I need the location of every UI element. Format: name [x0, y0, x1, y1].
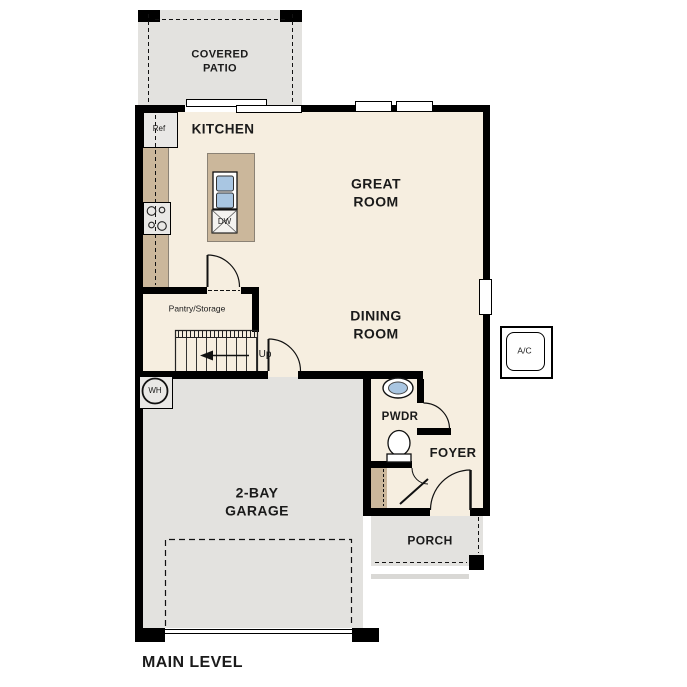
closet-door — [384, 468, 429, 506]
burner-icon — [147, 207, 166, 231]
dining-room-label-line2: ROOM — [350, 325, 401, 343]
covered-patio-label-line1: COVERED — [191, 48, 248, 62]
porch-label: PORCH — [407, 534, 452, 549]
up-label: Up — [259, 349, 272, 362]
powder-door-swing — [424, 403, 450, 429]
dining-room-label-line1: DINING — [350, 308, 401, 326]
ac-unit-label: A/C — [517, 346, 531, 357]
kitchen-label: KITCHEN — [192, 122, 255, 139]
plan-title: MAIN LEVEL — [142, 653, 243, 673]
front-door-swing — [431, 470, 471, 510]
dining-room-label: DINING ROOM — [350, 308, 401, 343]
garage-label-line1: 2-BAY — [225, 485, 289, 503]
floor-plan-canvas: COVERED PATIO KITCHEN GREAT ROOM DINING … — [0, 0, 687, 687]
water-heater-label: WH — [148, 386, 161, 396]
great-room-label-line1: GREAT — [351, 176, 401, 194]
plan-linework — [0, 0, 687, 687]
refrigerator-label: Ref — [153, 124, 165, 134]
stairs — [176, 331, 258, 372]
garage-label: 2-BAY GARAGE — [225, 485, 289, 520]
toilet-icon — [387, 431, 411, 463]
foyer-label: FOYER — [430, 445, 477, 461]
pantry-door-swing — [208, 255, 241, 291]
great-room-label: GREAT ROOM — [351, 176, 401, 211]
great-room-label-line2: ROOM — [351, 193, 401, 211]
garage-entry-door-swing — [269, 339, 301, 371]
covered-patio-label-line2: PATIO — [191, 62, 248, 76]
powder-label: PWDR — [382, 410, 419, 424]
garage-door-dashed — [166, 540, 352, 627]
pantry-label: Pantry/Storage — [169, 304, 226, 315]
dishwasher-label: DW — [218, 217, 231, 227]
powder-sink-icon — [383, 378, 413, 398]
covered-patio-label: COVERED PATIO — [191, 48, 248, 76]
garage-label-line2: GARAGE — [225, 502, 289, 520]
kitchen-sink-icon — [213, 172, 237, 209]
